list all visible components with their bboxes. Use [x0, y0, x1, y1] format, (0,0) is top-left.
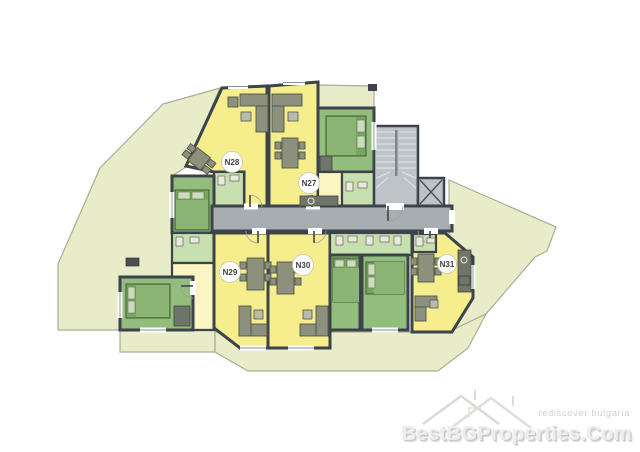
- watermark-slogan: rediscover bulgaria: [538, 408, 630, 419]
- unit-label-n28-text: N28: [225, 158, 240, 167]
- watermark: rediscover bulgaria BestBGProperties.Com: [417, 384, 632, 448]
- unit-label-n29: N29: [220, 262, 241, 283]
- floor-plan-page: N28 N27 N29 N30 N31 rediscover bulgaria …: [0, 0, 640, 452]
- unit-label-n27: N27: [299, 173, 320, 194]
- unit-label-n31: N31: [438, 255, 457, 274]
- corridor: [212, 206, 452, 231]
- unit-label-n30: N30: [293, 255, 314, 276]
- unit-label-n30-text: N30: [296, 261, 311, 270]
- watermark-site-name: BestBGProperties.Com: [402, 423, 632, 446]
- terrace-south-west: [120, 330, 215, 352]
- unit-label-n28: N28: [222, 152, 243, 173]
- terrace-corner-post: [368, 84, 377, 91]
- unit-label-n27-text: N27: [302, 179, 317, 188]
- terrace-north: [312, 85, 374, 110]
- unit-label-n31-text: N31: [440, 260, 455, 269]
- unit-label-n29-text: N29: [223, 268, 238, 277]
- terrace-vent: [126, 258, 139, 266]
